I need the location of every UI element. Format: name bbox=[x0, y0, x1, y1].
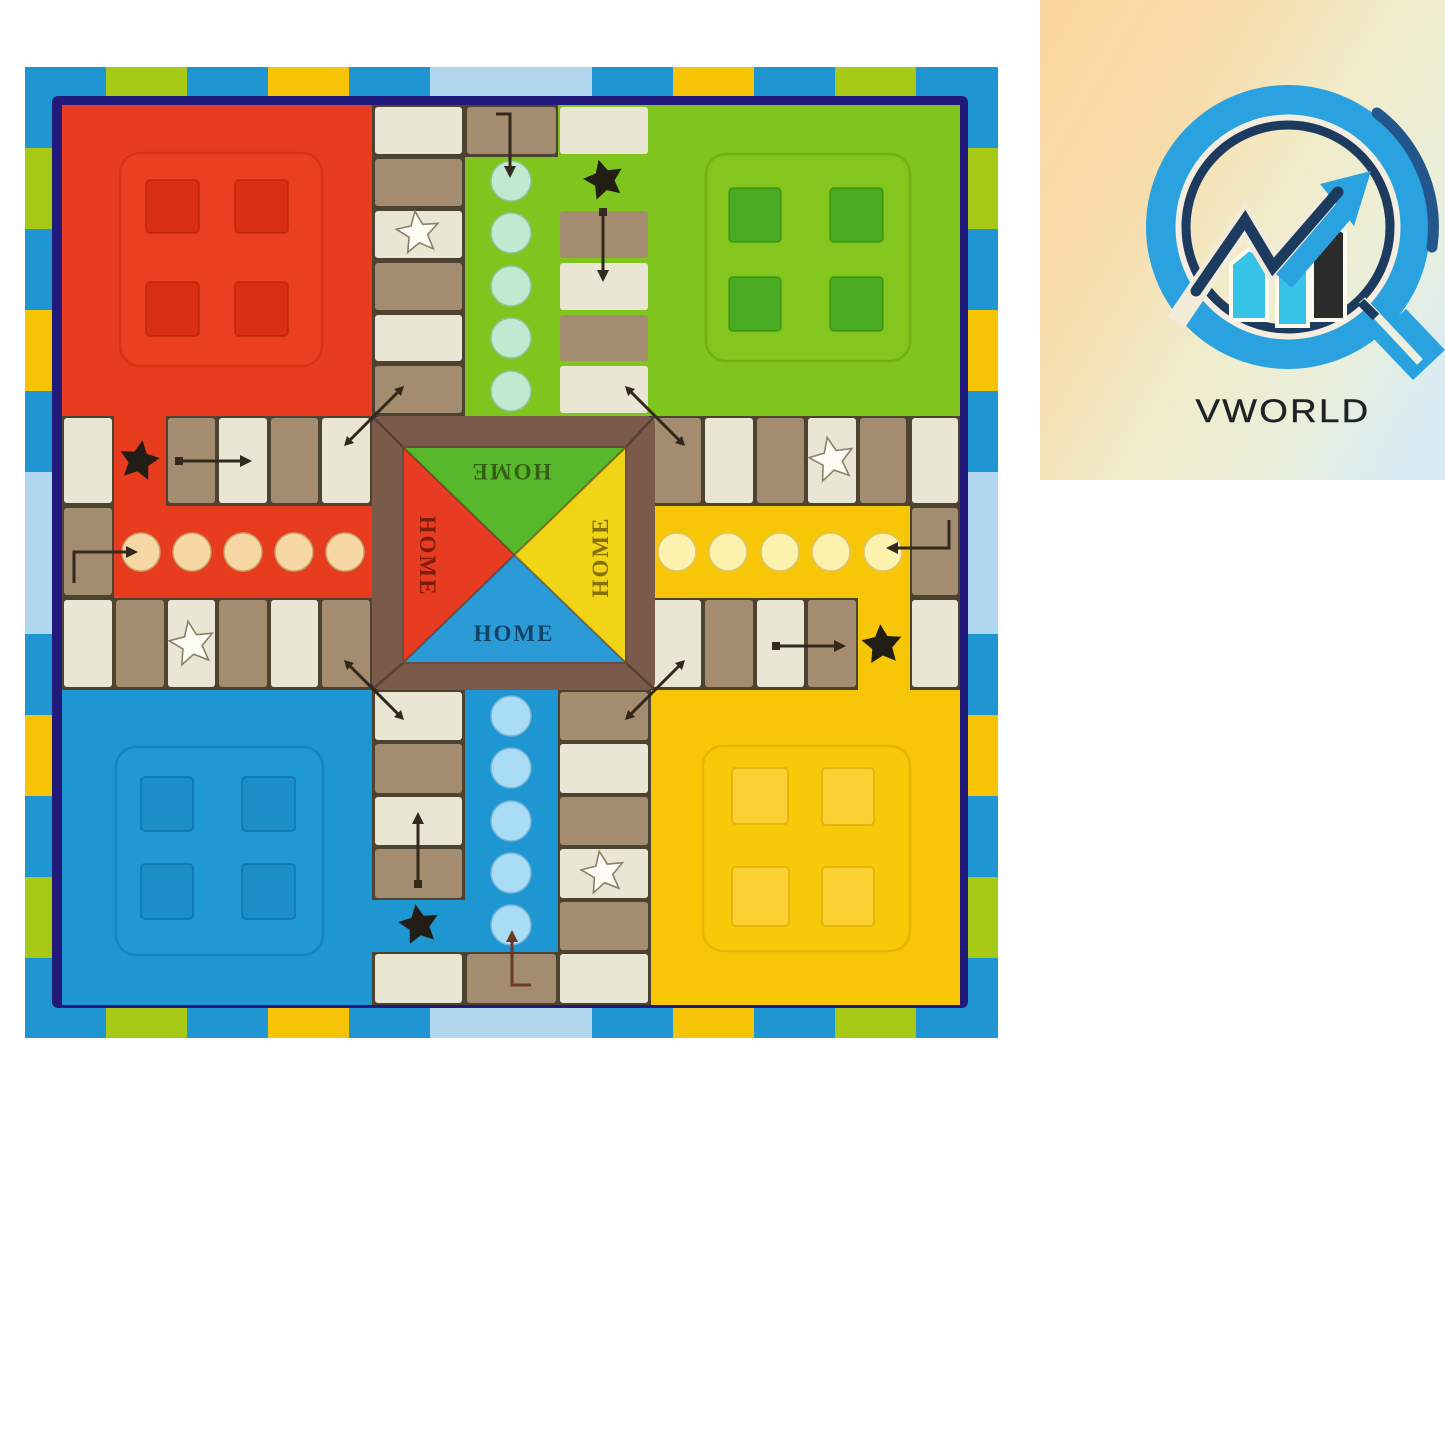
svg-text:VWORLD: VWORLD bbox=[1196, 393, 1371, 429]
svg-text:HOME: HOME bbox=[474, 621, 555, 646]
svg-text:HOME: HOME bbox=[588, 517, 613, 598]
svg-text:HOME: HOME bbox=[471, 459, 552, 484]
svg-text:HOME: HOME bbox=[415, 516, 440, 597]
